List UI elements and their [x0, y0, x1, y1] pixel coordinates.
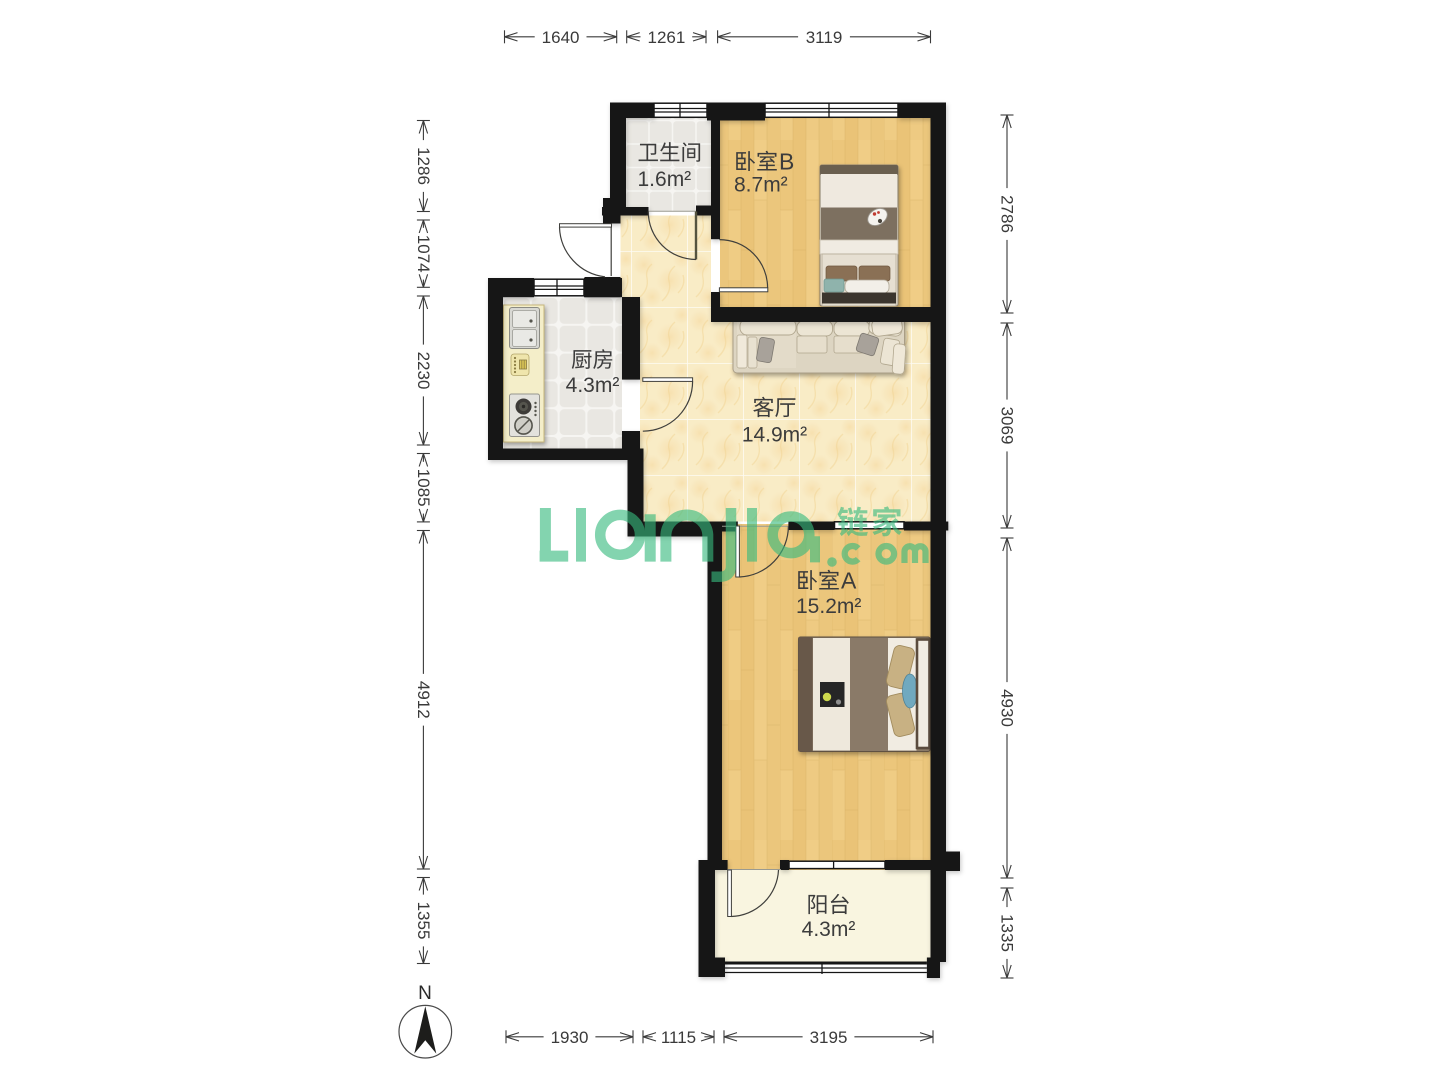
- svg-text:4930: 4930: [997, 689, 1016, 727]
- svg-text:B: B: [779, 148, 794, 174]
- svg-text:1930: 1930: [551, 1028, 589, 1047]
- svg-text:4.3m²: 4.3m²: [802, 918, 856, 941]
- svg-text:2230: 2230: [414, 352, 433, 390]
- svg-text:3119: 3119: [806, 28, 843, 47]
- svg-text:3195: 3195: [810, 1028, 848, 1047]
- svg-text:1261: 1261: [647, 28, 685, 47]
- svg-text:1286: 1286: [414, 147, 433, 185]
- svg-text:A: A: [841, 567, 857, 593]
- svg-text:1335: 1335: [997, 914, 1016, 952]
- svg-text:3069: 3069: [997, 407, 1016, 445]
- svg-text:N: N: [418, 983, 432, 1004]
- svg-text:1640: 1640: [542, 28, 580, 47]
- svg-text:15.2m²: 15.2m²: [796, 595, 861, 618]
- svg-text:14.9m²: 14.9m²: [742, 424, 807, 447]
- svg-text:1074: 1074: [414, 235, 433, 273]
- svg-text:4.3m²: 4.3m²: [566, 374, 620, 397]
- svg-text:1.6m²: 1.6m²: [638, 168, 692, 191]
- svg-text:4912: 4912: [414, 681, 433, 719]
- svg-text:8.7m²: 8.7m²: [734, 174, 788, 197]
- svg-text:1115: 1115: [661, 1028, 696, 1047]
- svg-text:1085: 1085: [414, 469, 433, 507]
- svg-text:2786: 2786: [997, 195, 1016, 233]
- svg-text:1355: 1355: [414, 902, 433, 940]
